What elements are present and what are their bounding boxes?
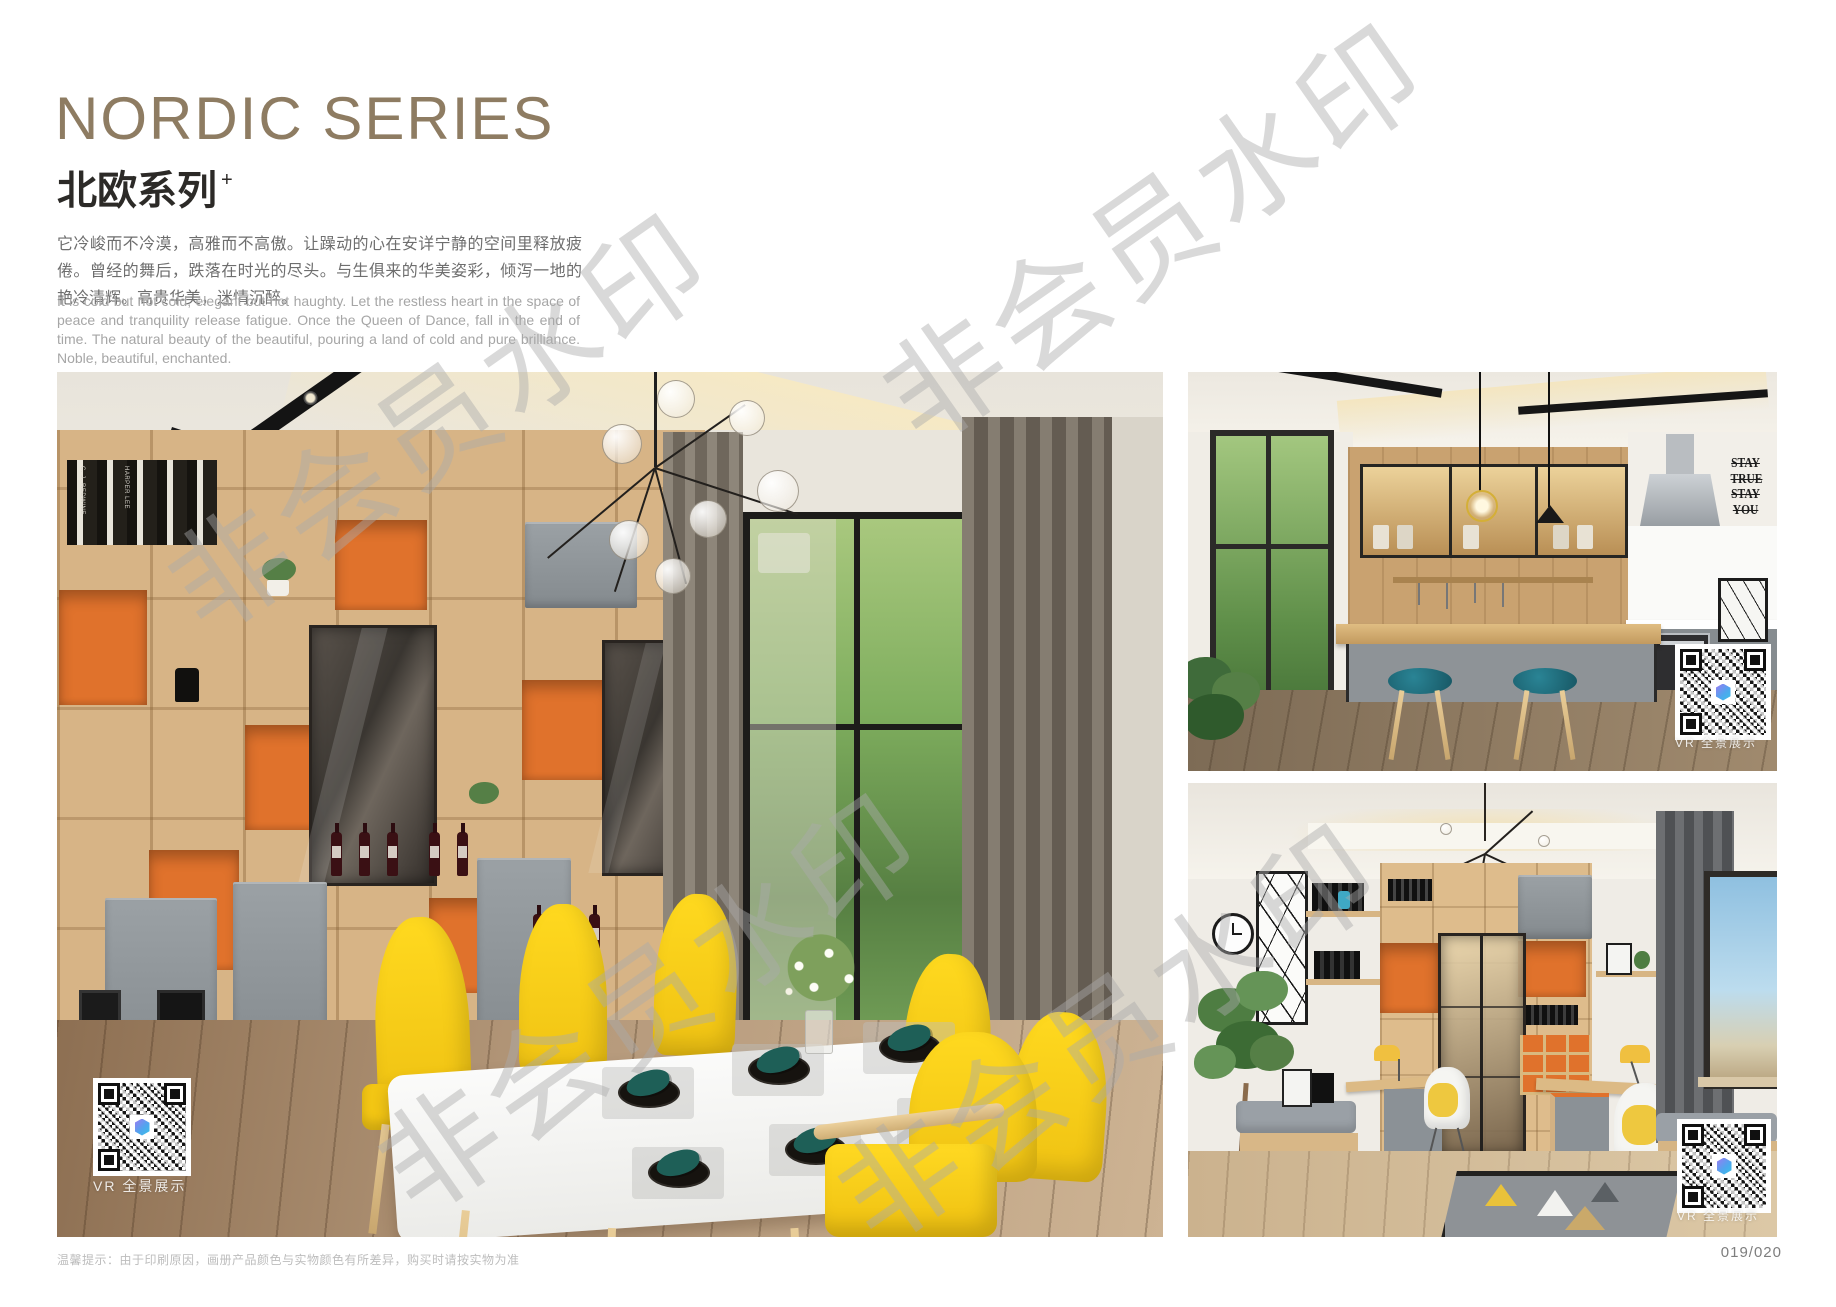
chandelier-globe — [757, 470, 799, 512]
book-spine-text: HARPER LEE — [123, 466, 129, 509]
lamp-arm — [1398, 1059, 1400, 1081]
study-room-photo: VR 全景展示 — [1188, 783, 1777, 1237]
cabinet-mullion — [1480, 936, 1483, 1154]
qr-finder — [1682, 1124, 1704, 1146]
wall-quote-line: STAY — [1732, 487, 1761, 503]
intro-paragraph-en: It is cold but not cold, elegant but not… — [57, 292, 580, 368]
wall-quote: STAY TRUE STAY YOU — [1722, 456, 1770, 518]
wall-shelf — [1306, 979, 1380, 985]
wine-bottle-row — [325, 818, 495, 878]
gray-cabinet-door — [1518, 875, 1592, 939]
pendant-cord — [1479, 372, 1481, 492]
range-hood-chimney — [1666, 434, 1694, 476]
vr-panorama-label: VR 全景展示 — [93, 1176, 186, 1196]
qr-code — [1675, 644, 1771, 740]
rug-triangle — [1591, 1182, 1619, 1202]
leaning-frame — [1312, 1073, 1334, 1103]
window-mullion — [1216, 544, 1328, 549]
cube-logo-icon — [1716, 684, 1731, 701]
cabinet-divider — [1535, 467, 1538, 555]
island-counter — [1336, 624, 1661, 644]
jar — [1577, 525, 1593, 549]
cactus — [1634, 951, 1650, 969]
cabinet-shelf-line — [1441, 1006, 1523, 1008]
books — [1314, 951, 1360, 979]
page-subtitle: 北欧系列+ — [57, 158, 233, 216]
jar — [1463, 525, 1479, 549]
leaning-artwork — [1718, 578, 1768, 642]
cube-logo-icon — [135, 1119, 150, 1136]
qr-finder — [1682, 1186, 1704, 1208]
small-frame — [1606, 943, 1632, 975]
ceiling-panel — [1308, 823, 1658, 849]
dining-chair-yellow — [519, 904, 607, 1079]
place-setting — [602, 1067, 694, 1119]
orange-shelf-cell — [59, 590, 147, 705]
rug — [1440, 1171, 1682, 1237]
qr-pattern — [98, 1083, 186, 1171]
jar — [1373, 525, 1389, 549]
lamp-arm — [1630, 1061, 1639, 1084]
armchair-cushion-yellow — [825, 1144, 997, 1237]
desk-lamp — [1374, 1045, 1400, 1061]
qr-finder — [1744, 1124, 1766, 1146]
shelf-plant — [262, 558, 296, 582]
desk-lamp — [1620, 1045, 1650, 1063]
subtitle-plus: + — [221, 169, 233, 191]
hanging-utensil — [1446, 583, 1448, 609]
chandelier-globe — [655, 558, 691, 594]
plant-foliage — [1194, 1045, 1236, 1079]
qr-pattern — [1682, 1124, 1766, 1208]
page-number: 019/020 — [1690, 1244, 1782, 1261]
hanging-utensil — [1418, 583, 1420, 605]
orange-shelf-cell — [1380, 943, 1438, 1013]
chandelier-globe — [729, 400, 765, 436]
book-row: C. J. REDWINE HARPER LEE — [67, 460, 217, 545]
orange-shelf-cell — [522, 680, 610, 780]
wall-quote-line: STAY — [1732, 456, 1761, 472]
qr-finder — [1680, 649, 1702, 671]
chair-cushion-yellow — [1428, 1083, 1458, 1117]
jar — [1397, 525, 1413, 549]
kitchen-photo: STAY TRUE STAY YOU VR 全景展示 — [1188, 372, 1777, 771]
curtain-right — [962, 417, 1117, 1057]
chandelier-bulb — [1440, 823, 1452, 835]
plant-foliage — [1250, 1035, 1294, 1071]
sheer-curtain-edge — [1112, 417, 1163, 1057]
vr-panorama-label: VR 全景展示 — [1677, 1207, 1759, 1224]
orange-shelf-cell — [1518, 941, 1586, 997]
book-spine-text: C. J. REDWINE — [79, 466, 85, 515]
catalog-page: NORDIC SERIES 北欧系列+ 它冷峻而不冷漠，高雅而不高傲。让躁动的心… — [0, 0, 1836, 1307]
wine-bottle — [387, 832, 398, 876]
wall-quote-line: YOU — [1733, 503, 1759, 519]
books — [1526, 1005, 1578, 1025]
pendant-cord — [1548, 372, 1550, 507]
place-setting — [632, 1147, 724, 1199]
chandelier-globe — [602, 424, 642, 464]
bench-wood-base — [1240, 1133, 1358, 1153]
cabinet-divider — [1449, 467, 1452, 555]
chandelier-stem — [654, 372, 657, 467]
chandelier-bulb — [1538, 835, 1550, 847]
qr-code — [93, 1078, 191, 1176]
vase — [175, 668, 199, 702]
qr-logo — [1711, 680, 1735, 704]
wine-bottle — [359, 832, 370, 876]
qr-code — [1677, 1119, 1771, 1213]
bar-stool-teal — [1388, 668, 1452, 694]
window-mullion — [1266, 436, 1271, 704]
window-sill — [1698, 1077, 1777, 1087]
pendant-light-cage — [1466, 490, 1498, 522]
wall-shelf — [1306, 911, 1380, 917]
orange-shelf-cell — [335, 520, 427, 610]
wine-bottle — [429, 832, 440, 876]
chandelier-stem — [1484, 783, 1486, 841]
cube-logo-icon — [1717, 1158, 1732, 1175]
rug-triangle — [1565, 1206, 1605, 1230]
window — [1704, 871, 1777, 1089]
wine-bottle — [457, 832, 468, 876]
qr-logo — [1712, 1154, 1736, 1178]
page-title: NORDIC SERIES — [55, 84, 554, 153]
vr-panorama-label: VR 全景展示 — [1675, 734, 1757, 751]
qr-finder — [98, 1149, 120, 1171]
open-shelf — [1393, 577, 1593, 583]
hanging-utensil — [1474, 583, 1476, 603]
hanging-utensil — [1502, 583, 1504, 607]
shelf-plant — [469, 782, 499, 804]
rug-triangle — [1485, 1184, 1517, 1206]
qr-finder — [98, 1083, 120, 1105]
clock-hand — [1232, 933, 1242, 935]
qr-finder — [1680, 713, 1702, 735]
wall-quote-line: TRUE — [1730, 472, 1762, 488]
qr-finder — [164, 1083, 186, 1105]
range-hood — [1640, 474, 1720, 526]
qr-pattern — [1680, 649, 1766, 735]
chandelier-globe — [689, 500, 727, 538]
wall-clock — [1212, 913, 1254, 955]
jar — [1553, 525, 1569, 549]
chandelier-globe — [609, 520, 649, 560]
bar-stool-teal — [1513, 668, 1577, 694]
wine-bottle — [331, 832, 342, 876]
footer-disclaimer: 温馨提示：由于印刷原因，画册产品颜色与实物颜色有所差异，购买时请按实物为准 — [57, 1251, 520, 1268]
qr-logo — [130, 1115, 154, 1139]
dining-room-photo: C. J. REDWINE HARPER LEE — [57, 372, 1163, 1237]
qr-finder — [1744, 649, 1766, 671]
chair-cushion-yellow — [1622, 1105, 1660, 1145]
books — [1388, 879, 1432, 901]
flowers — [769, 932, 869, 1017]
plant-pot — [267, 580, 289, 596]
subtitle-cn: 北欧系列 — [57, 169, 217, 213]
blue-vase — [1338, 891, 1350, 909]
leaning-frame — [1282, 1069, 1312, 1107]
chandelier-globe — [657, 380, 695, 418]
